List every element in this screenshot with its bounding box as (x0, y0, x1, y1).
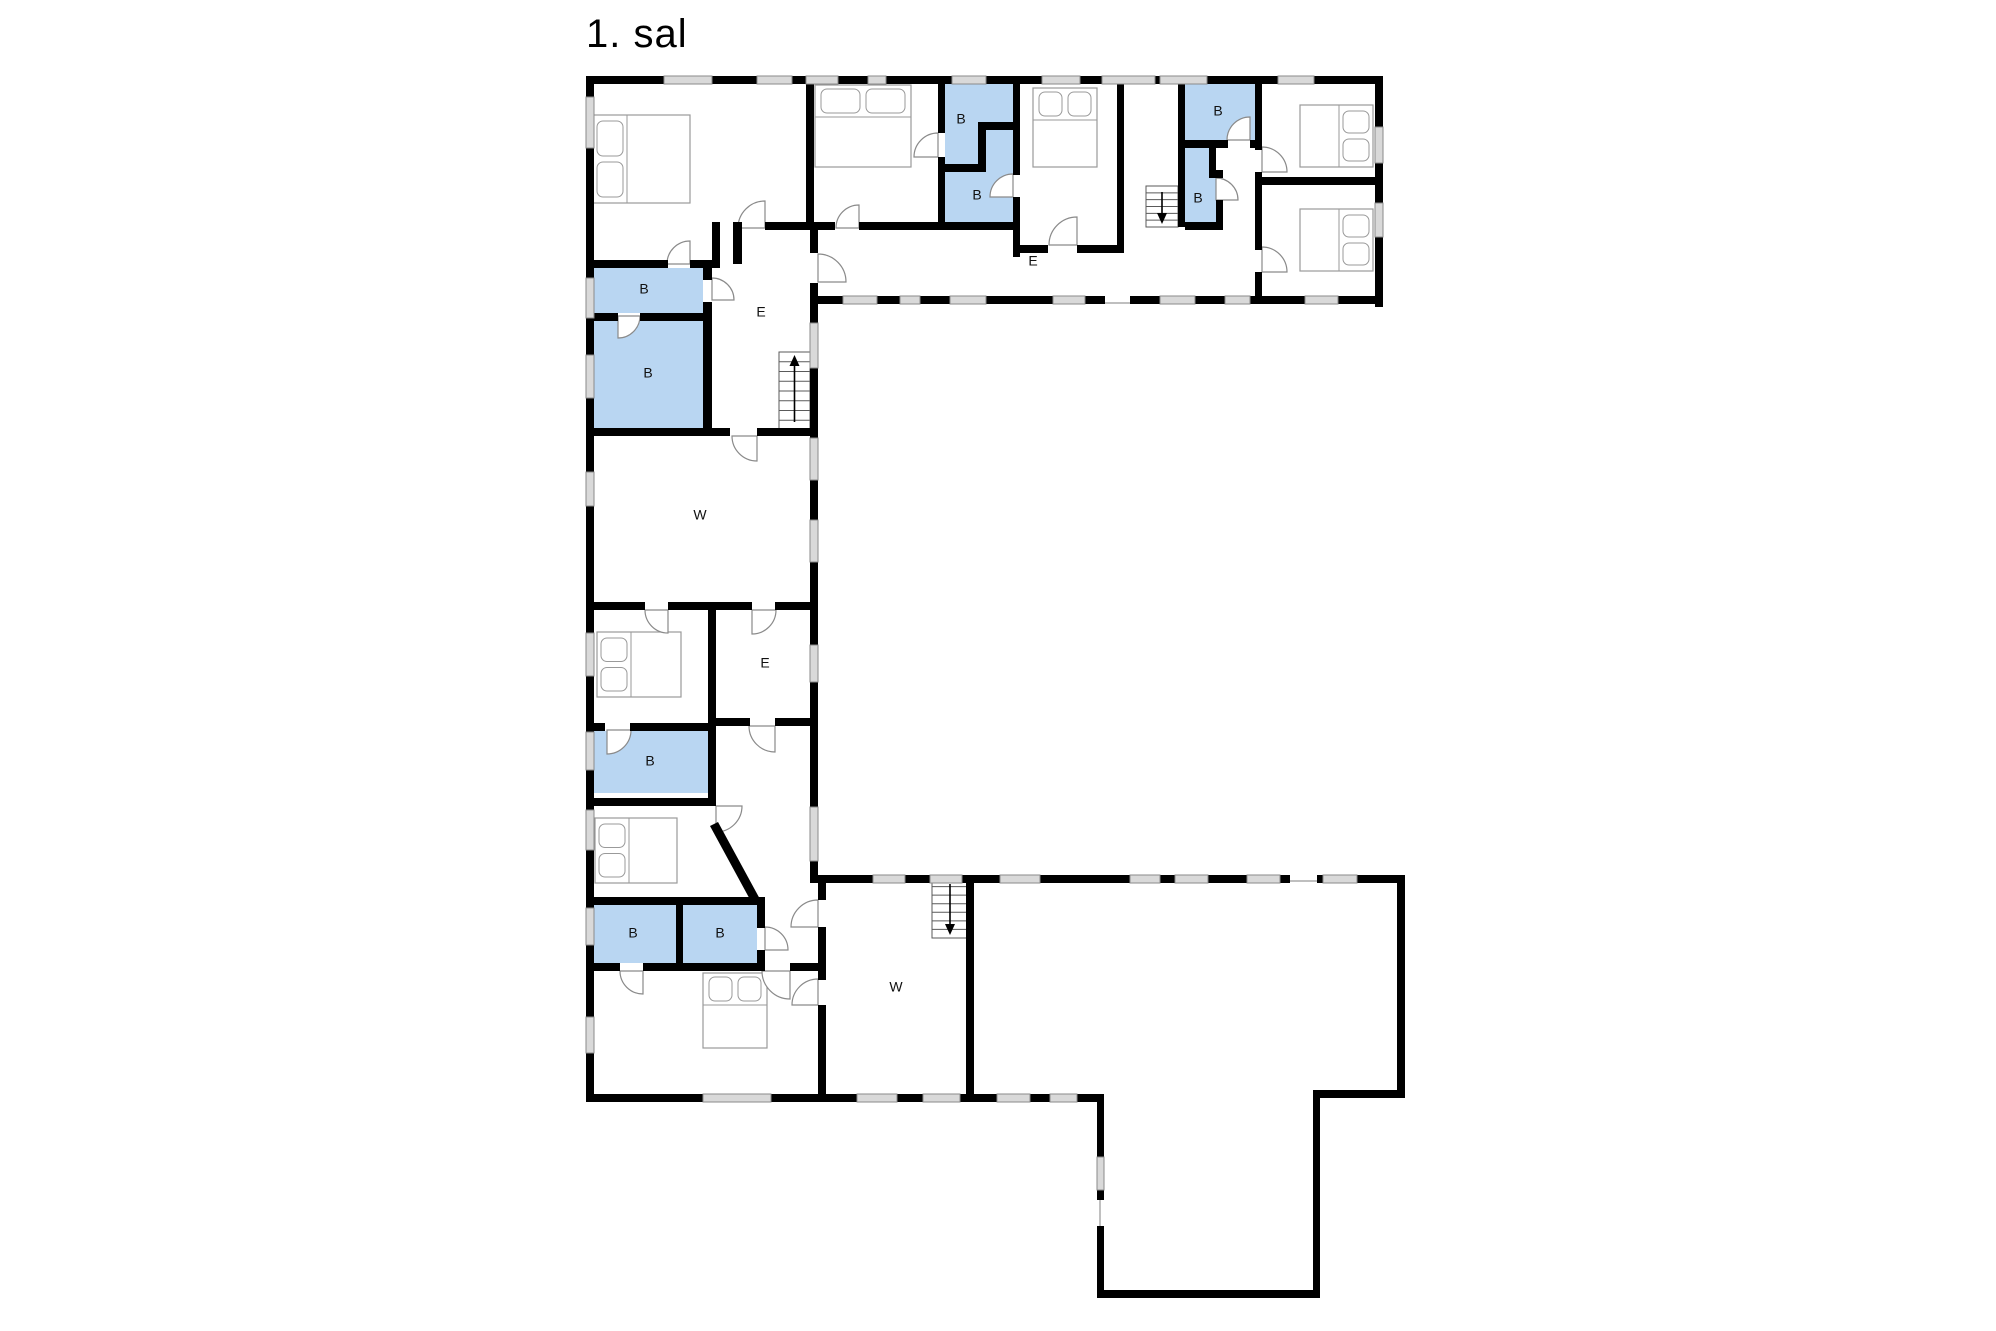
window (1278, 76, 1314, 84)
window (586, 908, 594, 945)
window (586, 810, 594, 850)
door-swing (620, 971, 643, 994)
bed-pillow (597, 121, 623, 156)
bed-pillow (821, 89, 860, 113)
door-swing (749, 726, 775, 752)
door-swing (667, 241, 690, 264)
wall (1375, 76, 1383, 307)
wall (810, 283, 818, 883)
window (950, 296, 986, 304)
bed-pillow (1343, 111, 1369, 133)
door-swing (645, 610, 668, 633)
window (810, 438, 818, 480)
wall (945, 222, 1020, 230)
window (1160, 76, 1207, 84)
wall (1097, 1094, 1104, 1157)
wall (818, 1005, 826, 1102)
window (1247, 875, 1280, 883)
wall (775, 602, 814, 610)
door-swing (738, 201, 765, 228)
room-label: W (693, 507, 707, 523)
bathroom-label: B (715, 925, 724, 941)
window (900, 296, 920, 304)
wall (643, 963, 765, 971)
window (1042, 76, 1080, 84)
wall (1077, 245, 1124, 253)
wall (586, 260, 668, 268)
bathroom-label: B (1213, 103, 1222, 119)
window (586, 355, 594, 398)
door-swing (712, 278, 734, 300)
door-swing (732, 436, 757, 461)
wall (586, 723, 605, 731)
door-swing (765, 927, 788, 950)
wall (945, 164, 978, 172)
wall (1097, 1190, 1104, 1200)
wall (1255, 272, 1262, 304)
window (1175, 875, 1208, 883)
bed-pillow (1343, 243, 1369, 265)
wall (640, 313, 703, 321)
bathroom-label: B (643, 365, 652, 381)
wall (818, 875, 826, 900)
window (586, 633, 594, 676)
floorplan-page: 1. sal EEWEWBBBBBBBBB (0, 0, 1996, 1331)
bed-pillow (599, 824, 625, 848)
floorplan-svg: EEWEWBBBBBBBBB (0, 0, 1996, 1331)
bed-pillow (738, 977, 761, 1001)
wall (982, 122, 1013, 130)
wall (630, 723, 708, 731)
door-swing (1216, 178, 1238, 200)
window (997, 1094, 1030, 1102)
wall (806, 222, 835, 230)
wall (938, 84, 945, 133)
door-swing (836, 205, 859, 228)
bathroom-label: B (1193, 190, 1202, 206)
bed-pillow (599, 854, 625, 878)
bathroom-label: B (645, 753, 654, 769)
window (930, 875, 962, 883)
wall (859, 222, 945, 230)
wall (586, 602, 645, 610)
window (664, 76, 712, 84)
wall (668, 602, 752, 610)
bed-pillow (1343, 139, 1369, 161)
window (868, 76, 886, 84)
window (703, 1094, 771, 1102)
wall (1313, 1090, 1405, 1098)
wall (775, 718, 814, 726)
window (810, 323, 818, 368)
bed-pillow (1039, 92, 1062, 116)
window (1375, 127, 1383, 163)
wall (712, 222, 720, 268)
wall-diagonal (710, 822, 761, 905)
window (952, 76, 986, 84)
wall (1397, 875, 1405, 1098)
window (873, 875, 905, 883)
door-swing (914, 133, 938, 157)
wall (1185, 140, 1228, 148)
window (810, 807, 818, 861)
window (1375, 203, 1383, 237)
bed-pillow (601, 638, 627, 662)
door-swing (791, 900, 818, 927)
window (857, 1094, 897, 1102)
window (1050, 1094, 1077, 1102)
door-swing (1262, 147, 1287, 172)
wall (586, 428, 730, 436)
bed-pillow (866, 89, 905, 113)
room-label: W (889, 979, 903, 995)
wall (1178, 84, 1185, 227)
wall (1013, 84, 1020, 175)
window (1097, 1157, 1104, 1190)
door-swing (1262, 247, 1287, 272)
wall (966, 875, 974, 1102)
bed-pillow (1343, 215, 1369, 237)
wall (806, 84, 814, 222)
wall (1216, 200, 1223, 222)
window (923, 1094, 960, 1102)
wall (586, 897, 762, 905)
window (586, 278, 594, 318)
window (843, 296, 877, 304)
wall (703, 260, 712, 280)
window (1053, 296, 1085, 304)
door-swing (752, 610, 776, 634)
bed-pillow (1068, 92, 1091, 116)
wall (586, 76, 594, 1102)
wall (1097, 1226, 1104, 1298)
wall (757, 428, 814, 436)
door-swing (792, 979, 818, 1005)
wall (1313, 1090, 1320, 1298)
window (586, 97, 594, 148)
wall (733, 222, 742, 264)
window (1102, 76, 1155, 84)
wall (1255, 177, 1383, 185)
window (586, 472, 594, 506)
bed-pillow (597, 162, 623, 197)
room-label: E (1028, 253, 1037, 269)
wall (978, 122, 986, 172)
window (810, 520, 818, 562)
bed-pillow (601, 668, 627, 692)
wall (586, 798, 714, 806)
window (1000, 875, 1040, 883)
wall (1185, 222, 1223, 230)
wall (765, 222, 806, 230)
wall (708, 723, 716, 806)
window (1323, 875, 1357, 883)
wall (818, 927, 826, 980)
wall (1255, 84, 1262, 150)
bathroom-label: B (956, 111, 965, 127)
room-label: E (756, 304, 765, 320)
window (586, 732, 594, 770)
wall (1097, 1290, 1320, 1298)
wall (938, 157, 945, 230)
bathroom-label: B (972, 187, 981, 203)
door-swing (1049, 217, 1077, 245)
wall (586, 963, 620, 971)
window (1160, 296, 1195, 304)
wall (1117, 84, 1124, 253)
bathroom-label: B (628, 925, 637, 941)
room-label: E (760, 655, 769, 671)
window (1225, 296, 1250, 304)
wall (708, 610, 716, 723)
window (1130, 875, 1160, 883)
wall (1209, 170, 1223, 178)
window (757, 76, 792, 84)
wall (676, 897, 683, 971)
window (806, 76, 838, 84)
window (586, 1017, 594, 1053)
bathroom-label: B (639, 281, 648, 297)
door-swing (818, 254, 846, 282)
bed-pillow (709, 977, 732, 1001)
window (810, 645, 818, 682)
window (1305, 296, 1338, 304)
wall (703, 302, 712, 434)
